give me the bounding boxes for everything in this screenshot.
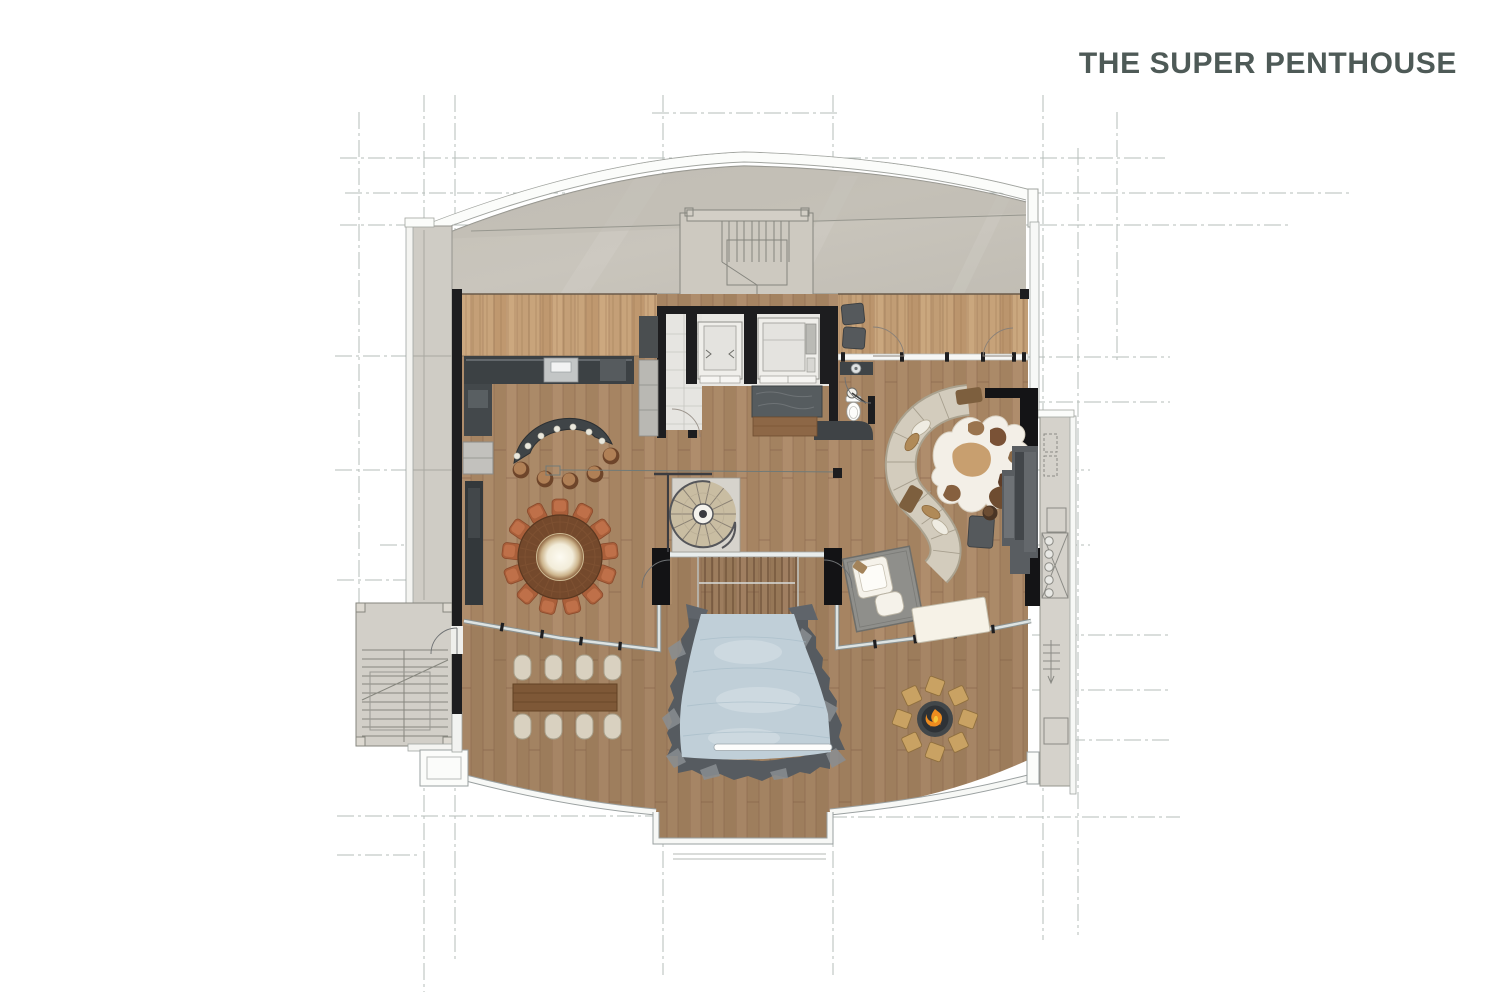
svg-text:THE SUPER PENTHOUSE: THE SUPER PENTHOUSE [1079, 47, 1457, 80]
